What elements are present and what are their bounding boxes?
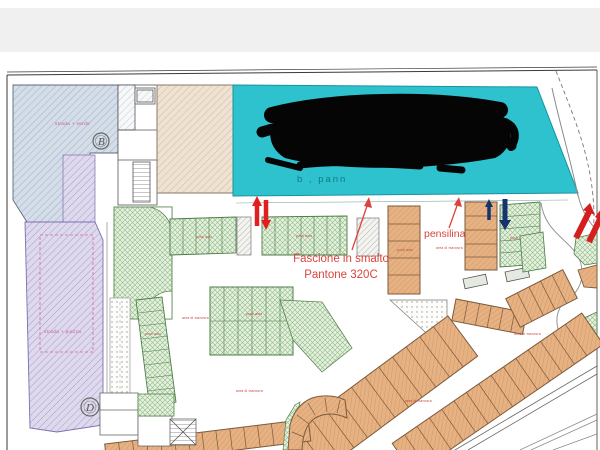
fascione-annotation-line1: Fascione in smalto <box>293 253 389 265</box>
tiny-label: area di manovra <box>236 389 263 393</box>
parking-grid-center: posti auto <box>210 287 293 355</box>
pensilina-annotation: pensilina <box>424 228 466 240</box>
fascione-annotation-line2: Pantone 320C <box>304 269 378 281</box>
zone-b-note: strada + verde <box>55 121 90 126</box>
grid-letter-d: D <box>85 402 94 414</box>
tiny-label: posti auto <box>296 234 312 238</box>
ramp-hatch <box>237 217 251 255</box>
tiny-label: posti auto <box>397 248 413 252</box>
parking-row-b: posti auto <box>262 216 347 255</box>
tiny-label: posti auto <box>145 332 161 336</box>
tiny-label: area di manovra <box>405 399 432 403</box>
parking-row-a: posti auto <box>170 217 236 255</box>
top-gray-band <box>0 8 600 52</box>
terrace-strip-1: posti auto <box>388 206 420 294</box>
main-building <box>157 85 233 193</box>
tiny-label: posti auto <box>196 235 212 239</box>
site-plan-drawing: strada + verde B strada + piazza D b , p… <box>0 0 600 450</box>
zone-b-purple-strip <box>63 155 95 222</box>
stairs-icon <box>133 162 150 202</box>
grid-letter-b: B <box>98 136 105 148</box>
zone-d-area: strada + piazza D <box>25 222 103 432</box>
redaction-scribble <box>262 102 515 170</box>
green-island-left <box>520 232 546 272</box>
canopy-label-fragment: b , pann <box>297 174 347 185</box>
tiny-label: area di manovra <box>182 316 209 320</box>
site-plan-screenshot: strada + verde B strada + piazza D b , p… <box>0 0 600 450</box>
tiny-label: area di manovra <box>514 332 541 336</box>
terrace-strip-2 <box>465 202 497 270</box>
tiny-label: posti auto <box>246 312 262 316</box>
room-cluster <box>118 85 157 205</box>
tiny-label: area di manovra <box>436 246 463 250</box>
zone-d-note: strada + piazza <box>44 329 81 334</box>
